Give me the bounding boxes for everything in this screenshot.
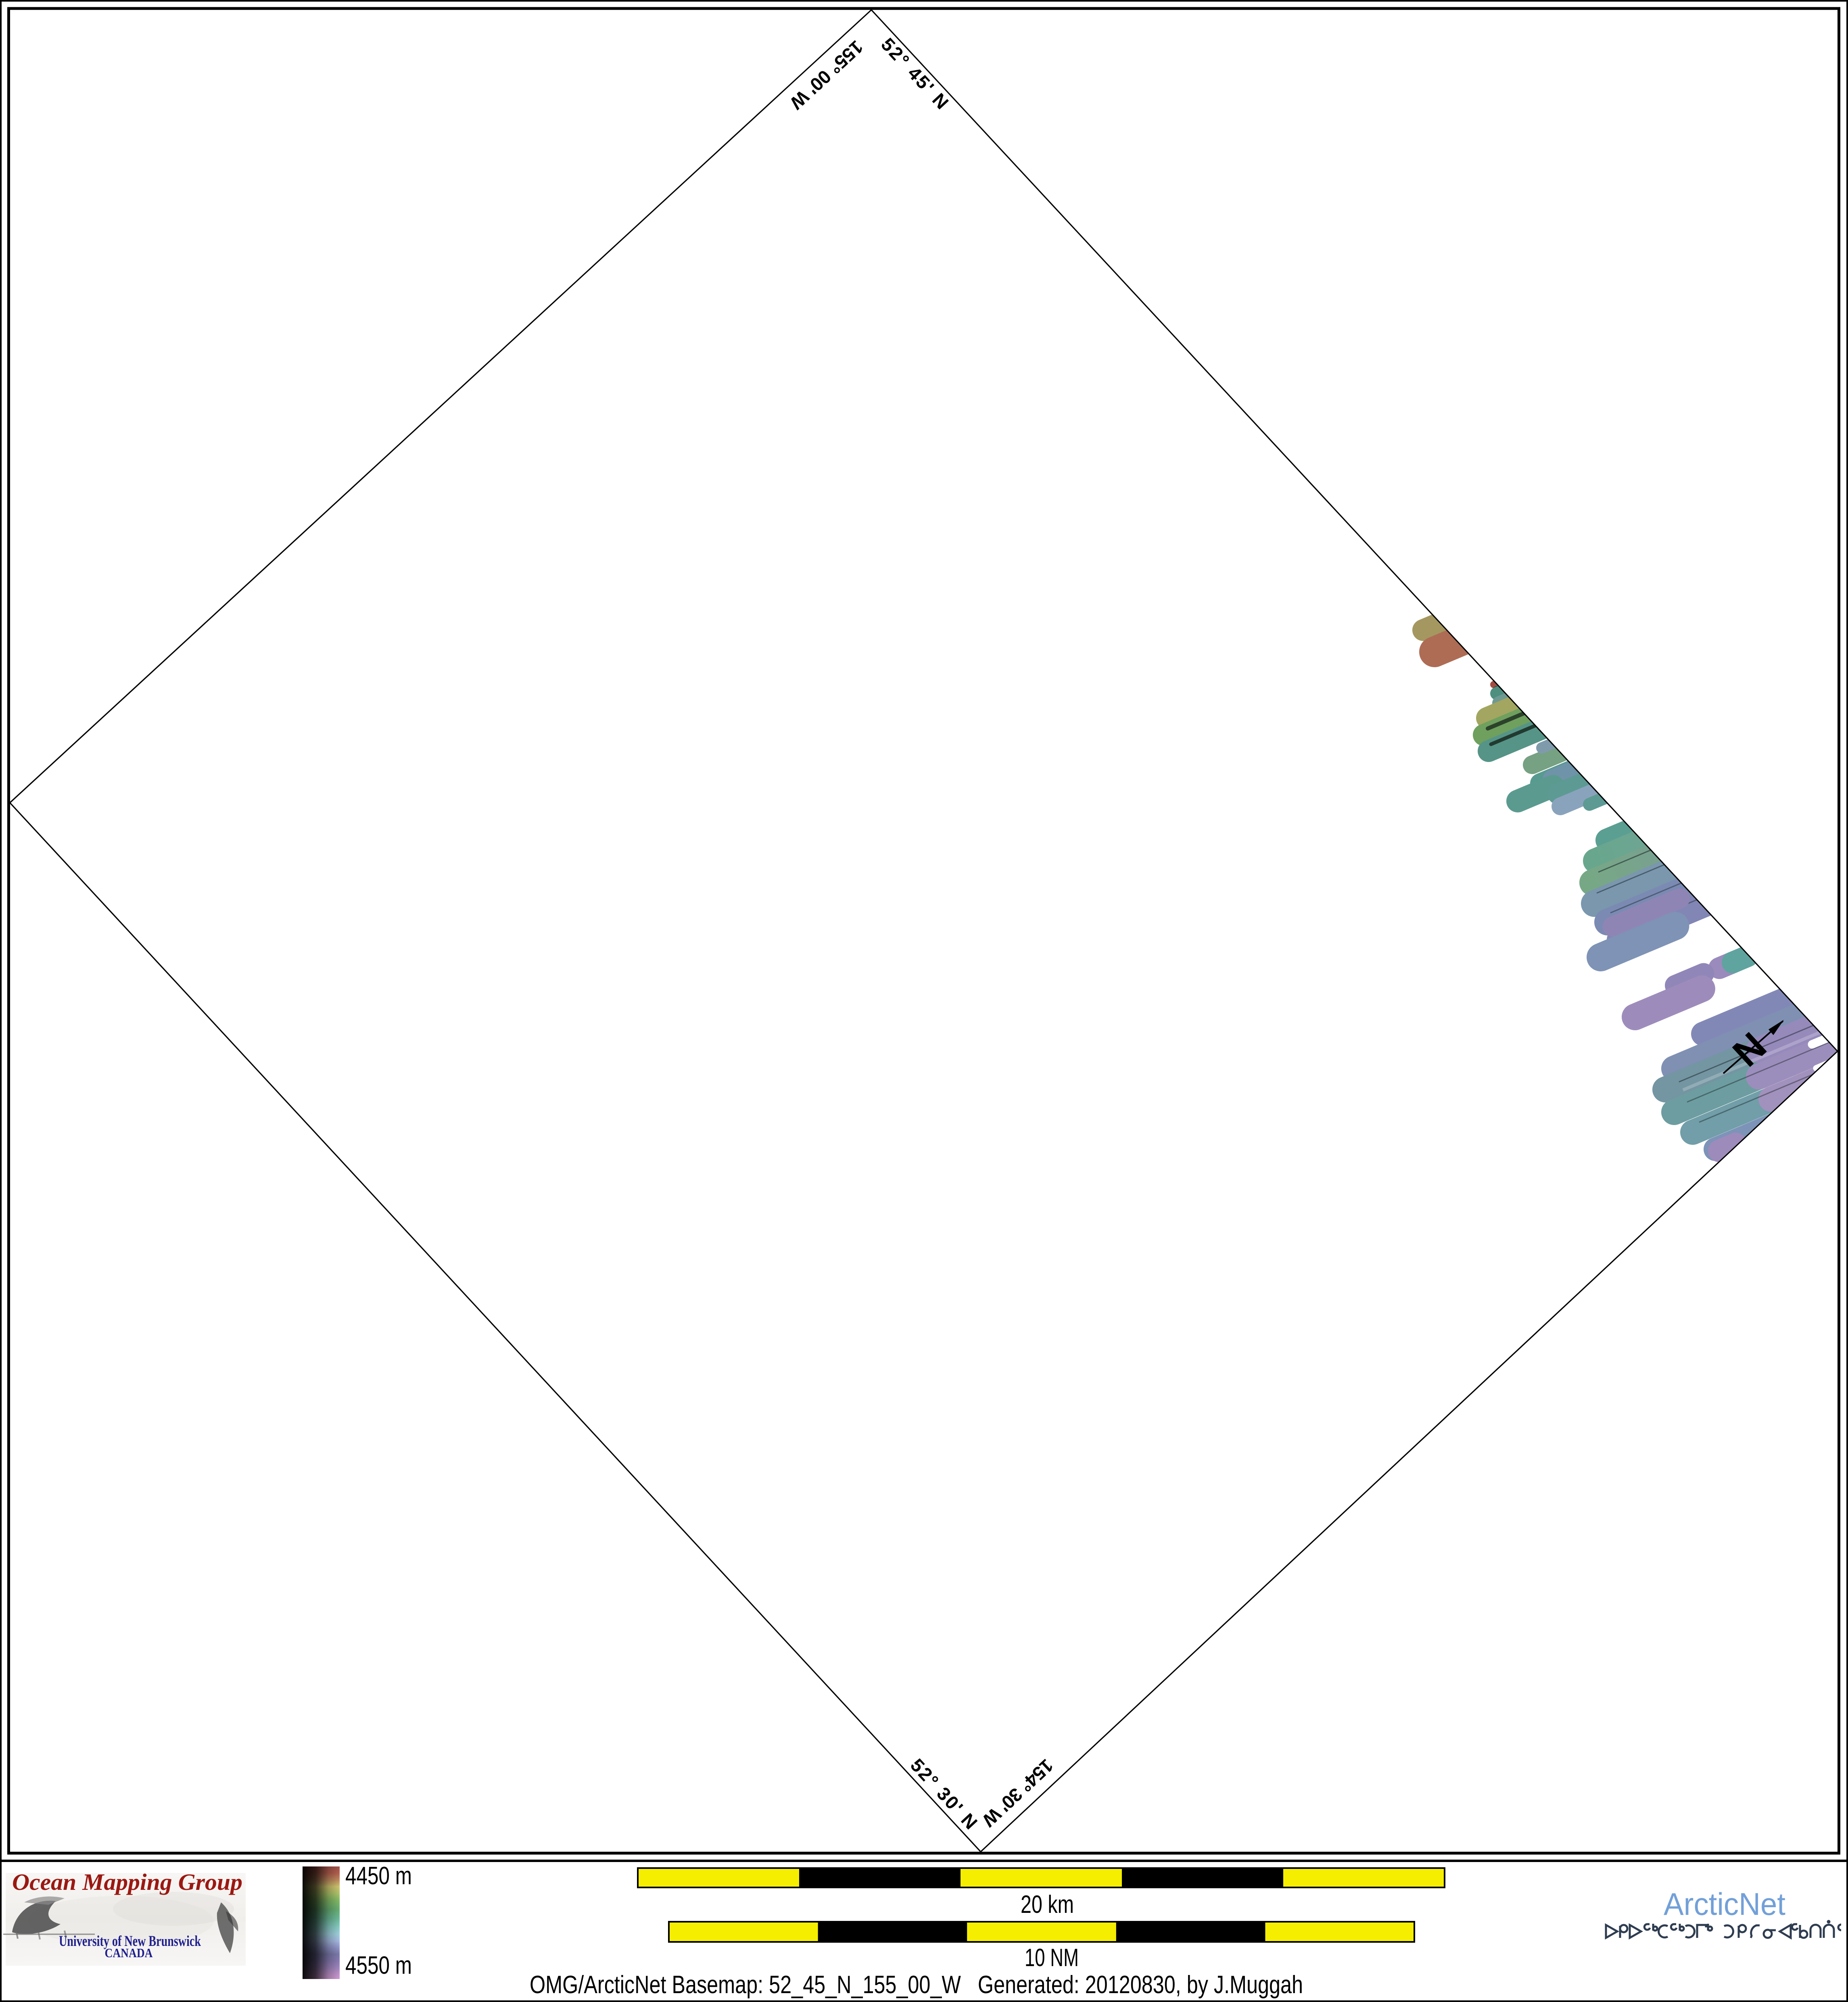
svg-text:Ocean Mapping Group: Ocean Mapping Group bbox=[12, 1869, 242, 1895]
svg-text:ArcticNet: ArcticNet bbox=[1664, 1886, 1785, 1922]
svg-text:4550 m: 4550 m bbox=[345, 1952, 412, 1979]
svg-text:20 km: 20 km bbox=[1021, 1891, 1074, 1918]
svg-text:4450 m: 4450 m bbox=[345, 1862, 412, 1890]
svg-text:10 NM: 10 NM bbox=[1025, 1944, 1079, 1972]
svg-text:CANADA: CANADA bbox=[105, 1946, 153, 1960]
svg-text:OMG/ArcticNet Basemap: 52_45_N: OMG/ArcticNet Basemap: 52_45_N_155_00_W … bbox=[530, 1971, 1303, 1999]
